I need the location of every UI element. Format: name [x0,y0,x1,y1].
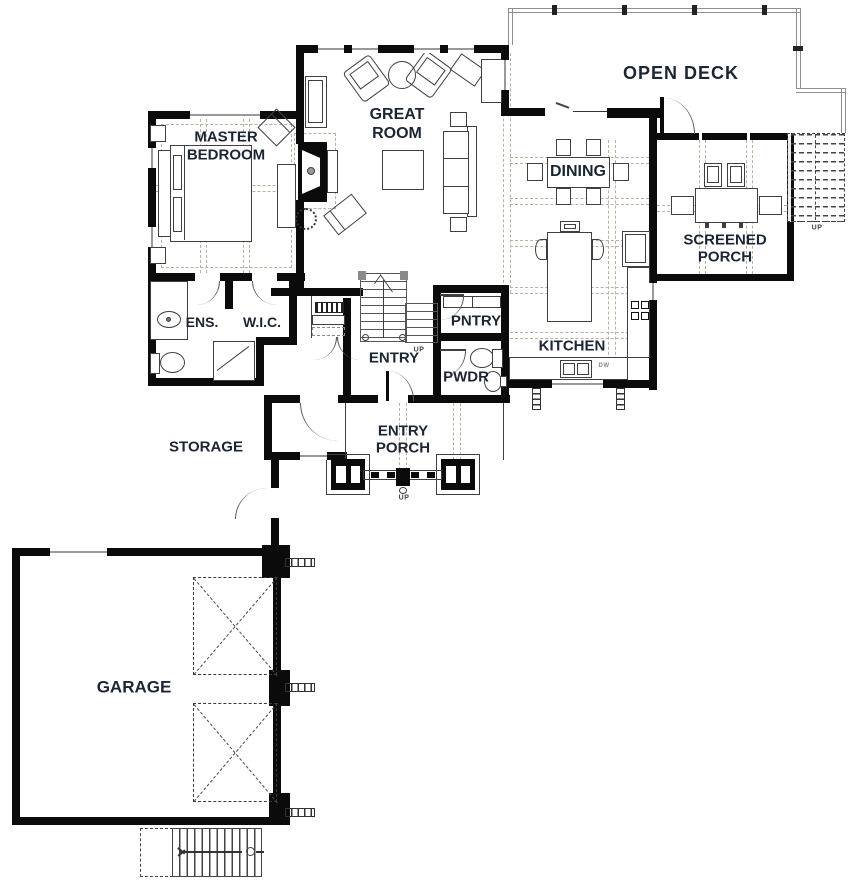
refrigerator-inner [625,234,646,263]
wall [437,285,508,293]
console-table [481,59,502,103]
room-label-great-2: ROOM [372,126,422,142]
room-label-pwdr: PWDR [443,370,489,385]
sink-basin [563,363,575,375]
door-arc-closet-right [337,337,360,360]
step-tick [427,472,435,478]
toilet-tank [492,349,503,368]
ceiling-dash-line [510,53,511,293]
deck-edge [508,8,513,45]
kitchen-island [547,232,592,322]
room-label-open-deck: OPEN DECK [623,64,739,82]
wall [607,108,660,118]
deck-post-tick [793,46,803,51]
sink-basin [577,363,589,375]
deck-stair-rail [815,135,816,220]
door-arc-deck-porch [664,98,695,134]
room-label-great-1: GREAT [370,107,425,123]
porch-chair [704,163,722,187]
stair-landing-dashed [140,828,173,877]
wall [271,518,279,556]
cooktop-burner [641,312,649,320]
table-leg-tick [722,223,726,228]
room-label-ens: ENS. [186,315,219,329]
stair-rail-cap [358,271,366,280]
closet-shelf [312,315,345,325]
porch-chair [759,196,782,215]
door-leaf [660,97,664,135]
porch-edge-line [503,403,504,460]
wall [264,395,272,455]
toilet-tank [150,353,160,374]
window [352,45,378,53]
porch-chair-back [707,166,719,183]
plant-icon [295,208,317,230]
entry-step [396,468,410,486]
armchair [342,54,390,103]
door-arc-closet-left [314,337,337,360]
nightstand [150,247,166,264]
fireplace-knob-icon [307,167,315,175]
dining-chair [613,163,629,181]
window [190,111,260,119]
deck-post [532,388,541,410]
room-label-wic: W.I.C. [243,315,281,329]
utility-mark [285,808,315,817]
room-label-entry-porch-1: ENTRY [378,424,428,439]
ceiling-dash-line [510,204,649,205]
table-leg-tick [739,223,743,228]
table-leg-tick [705,223,709,228]
stair-end-tick [256,851,264,853]
window [573,109,607,114]
stairs-deck [787,133,845,222]
end-table [450,112,467,127]
deck-post-tick [552,5,557,15]
deck-edge [796,88,846,93]
nightstand [150,125,166,142]
column-capital-bar [346,466,351,483]
pillow [173,197,182,232]
window [318,45,344,53]
closet-rod [315,302,344,313]
step-tick [371,472,379,478]
newel-circle [362,334,369,341]
sofa-seat [443,131,469,214]
wall [220,273,252,281]
door-arc-ensuite [197,281,220,305]
dining-chair [556,188,571,205]
room-label-master-1: MASTER [194,130,257,145]
window [148,227,156,247]
utility-mark [285,558,315,567]
deck-post-tick [762,5,767,15]
porch-chair [727,163,745,187]
floor-plan: DW UP UP [0,0,849,888]
toilet-icon [160,352,185,373]
dining-chair [586,188,601,205]
window [448,45,474,53]
armchair-cushion [416,57,446,86]
cooktop-burner [641,301,649,309]
closet-side-line [311,296,312,338]
bed-headboard [158,150,171,237]
door-arc-front-entry [388,371,414,401]
door-arc-storage [300,403,338,441]
door-leaf [440,294,464,296]
media-cabinet [305,76,327,128]
dining-chair [556,139,571,156]
wall [408,395,510,403]
step-tick [411,472,419,478]
up-label: UP [399,495,410,502]
deck-door-swing-mark [556,102,570,108]
utility-mark [285,683,315,692]
toilet-icon [470,348,494,368]
dresser [277,164,296,228]
porch-edge-line [345,403,346,460]
media-cabinet-inner [308,80,323,123]
closet-shelf-dashed [312,327,345,336]
wall [649,116,657,390]
room-label-pntry: PNTRY [451,314,501,329]
wall [264,395,300,403]
porch-chair-back [730,166,742,183]
room-label-dining: DINING [550,164,606,180]
door-arc-garage-vestibule [235,488,267,519]
pillow [173,155,182,190]
wall [12,817,290,825]
armchair [404,50,452,99]
island-sink-inner [564,224,576,229]
sink-counter [500,376,507,387]
window [699,133,702,140]
window [649,283,657,300]
room-label-master-2: BEDROOM [187,148,265,163]
deck-post-tick [622,5,627,15]
bar-stool [592,239,604,260]
deck-post [616,388,625,410]
entry-step-circle [399,487,407,494]
up-label: UP [812,225,823,232]
room-label-screened-2: PORCH [698,250,752,265]
dishwasher-label: DW [599,363,610,369]
wall [271,288,363,296]
step-tick [387,472,395,478]
window [501,60,509,90]
stair-direction-line [180,851,242,853]
window [50,548,107,556]
sofa-cushion-line [443,186,469,187]
wall [271,460,279,488]
bar-stool [535,239,547,260]
wall [296,45,304,144]
window [552,380,603,388]
stairs-landing-flight [405,303,438,343]
faucet-dot [166,317,171,322]
window [414,45,440,53]
porch-table [695,188,758,223]
refrigerator [622,231,650,267]
wall [657,274,794,281]
room-label-screened-1: SCREENED [683,233,766,248]
deck-post-tick [692,5,697,15]
sofa-cushion-line [443,158,469,159]
room-label-storage: STORAGE [169,440,243,455]
deck-edge [841,88,846,133]
window [148,148,156,168]
door-leaf [386,371,389,401]
dining-chair [527,163,543,181]
stair-end-circle [246,847,255,856]
room-label-entry-porch-2: PORCH [376,441,430,456]
window [300,452,327,460]
column-capital-bar [456,466,461,483]
room-label-entry: ENTRY [369,351,419,366]
wall [433,333,509,341]
pantry-shelf-divider [472,297,473,307]
coffee-table [382,150,424,190]
wall [657,133,794,140]
ceiling-dash-line [510,198,649,199]
fireplace-hearth [327,150,338,193]
porch-chair [671,196,694,215]
ottoman-line [330,211,345,230]
room-label-garage: GARAGE [97,679,172,696]
door-leaf [440,349,466,351]
dining-chair [586,139,601,156]
stair-rail-cap [400,271,408,280]
cooktop-burner [631,301,639,309]
armchair-cushion [349,61,379,90]
end-table [450,217,467,232]
door-arc-wic [252,281,277,305]
bed-linen-line [184,146,185,240]
wall [12,548,20,825]
cooktop-burner [631,312,639,320]
room-label-kitchen: KITCHEN [539,339,606,354]
window [747,133,750,140]
island-sink [560,221,580,232]
